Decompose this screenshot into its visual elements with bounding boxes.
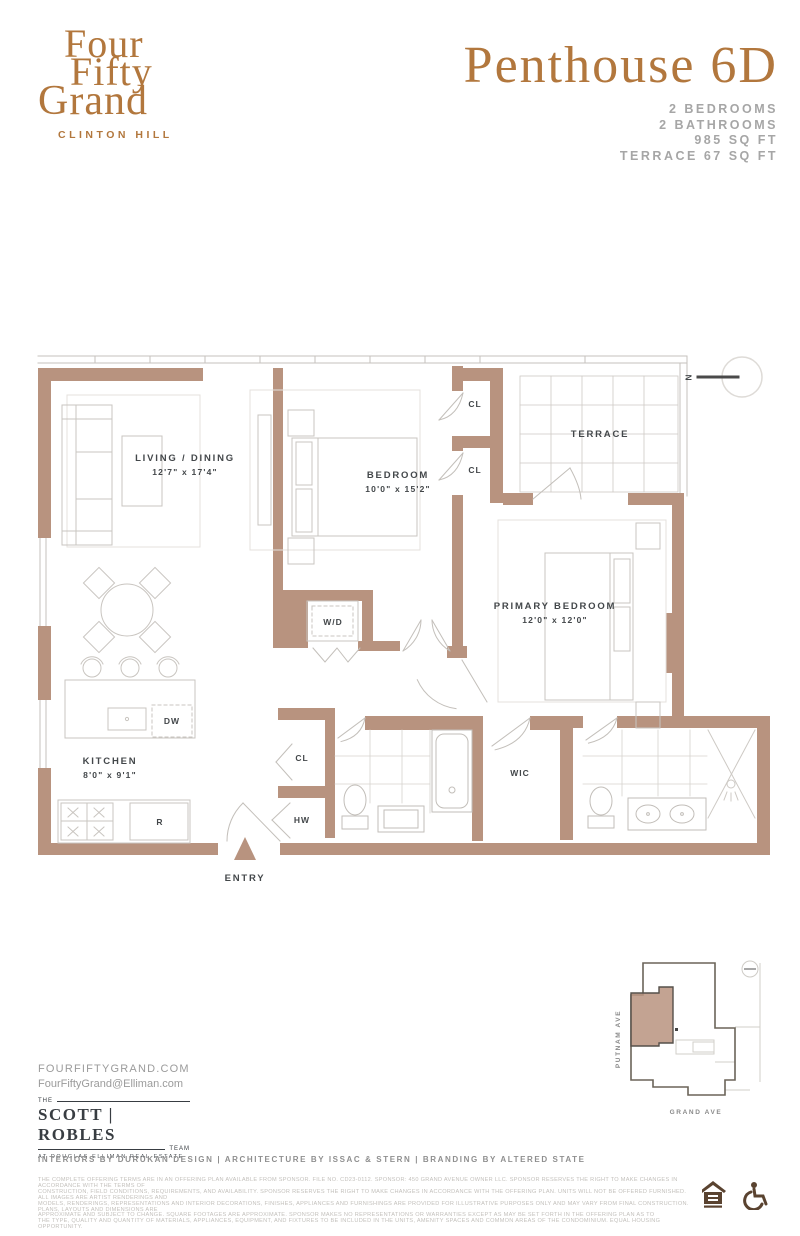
shower bbox=[708, 730, 755, 818]
window-lines bbox=[38, 356, 687, 768]
team-the: THE bbox=[38, 1098, 53, 1104]
wheelchair-accessible-icon bbox=[745, 1182, 766, 1210]
street-grand-label: GRAND AVE bbox=[670, 1109, 723, 1116]
website-link[interactable]: FOURFIFTYGRAND.COM bbox=[38, 1062, 190, 1077]
rule-top bbox=[57, 1101, 190, 1102]
primary-dims: 12'0" x 12'0" bbox=[522, 615, 588, 625]
primary-label: PRIMARY BEDROOM bbox=[494, 601, 617, 612]
keyplan-compass-icon bbox=[742, 961, 758, 977]
kitchen-dims: 8'0" x 9'1" bbox=[83, 770, 137, 780]
floor-plan: N LIVING / DINING 12'7" x 17'4" BEDROOM … bbox=[30, 348, 775, 893]
bedroom-label: BEDROOM bbox=[367, 470, 429, 481]
dw-label: DW bbox=[164, 716, 180, 726]
fair-housing-icons bbox=[702, 1180, 774, 1210]
pillow bbox=[296, 442, 312, 485]
living-room-label: LIVING / DINING bbox=[135, 453, 235, 464]
team-name: SCOTT | ROBLES bbox=[38, 1105, 190, 1145]
stove-icon bbox=[61, 803, 113, 840]
north-arrow: N bbox=[683, 357, 762, 397]
living-room-dims: 12'7" x 17'4" bbox=[152, 467, 218, 477]
disclaimer-line: CONSTRUCTION, FIELD CONDITIONS, REQUIREM… bbox=[38, 1190, 693, 1202]
unit-title: Penthouse 6D bbox=[464, 36, 778, 95]
spec-bathrooms: 2 BATHROOMS bbox=[620, 118, 778, 134]
nightstand bbox=[636, 523, 660, 549]
north-label: N bbox=[683, 373, 693, 380]
walls bbox=[38, 366, 770, 860]
email-link[interactable]: FourFiftyGrand@Elliman.com bbox=[38, 1077, 190, 1092]
kitchen-fixtures bbox=[58, 657, 195, 843]
toilet-tank bbox=[342, 816, 368, 829]
nightstand bbox=[288, 538, 314, 564]
spec-bedrooms: 2 BEDROOMS bbox=[620, 102, 778, 118]
unit-specs: 2 BEDROOMS 2 BATHROOMS 985 SQ FT TERRACE… bbox=[620, 102, 778, 164]
building-logo: Four Fifty Grand CLINTON HILL bbox=[38, 24, 173, 141]
toilet bbox=[590, 787, 612, 815]
design-credits: INTERIORS BY DURUKAN DESIGN | ARCHITECTU… bbox=[38, 1155, 586, 1164]
pillow bbox=[614, 607, 630, 651]
pillow bbox=[614, 559, 630, 603]
sofa bbox=[62, 405, 112, 545]
bath2-fixtures bbox=[588, 730, 755, 830]
closet-label: CL bbox=[295, 753, 308, 763]
closet-label: CL bbox=[468, 465, 481, 475]
media-console bbox=[258, 415, 271, 525]
entry-label: ENTRY bbox=[225, 873, 266, 884]
contact-block: FOURFIFTYGRAND.COM FourFiftyGrand@Ellima… bbox=[38, 1062, 190, 1092]
nightstand bbox=[288, 410, 314, 436]
equal-housing-icon bbox=[702, 1181, 726, 1208]
closet-label: CL bbox=[468, 399, 481, 409]
kitchen-label: KITCHEN bbox=[83, 756, 138, 767]
toilet-tank bbox=[588, 816, 614, 828]
wic-label: WIC bbox=[510, 768, 530, 778]
bath2-tile bbox=[583, 730, 707, 796]
unit-dot bbox=[675, 1028, 678, 1031]
disclaimer-line: THE TYPE, QUALITY AND QUANTITY OF MATERI… bbox=[38, 1219, 693, 1231]
key-plan: PUTNAM AVE GRAND AVE bbox=[608, 942, 793, 1132]
plan-graphics: N LIVING / DINING 12'7" x 17'4" BEDROOM … bbox=[38, 356, 770, 884]
legal-disclaimer: THE COMPLETE OFFERING TERMS ARE IN AN OF… bbox=[38, 1178, 693, 1231]
terrace-label: TERRACE bbox=[571, 429, 630, 440]
hw-label: HW bbox=[294, 815, 310, 825]
kitchen-island bbox=[65, 680, 195, 738]
pillow bbox=[296, 489, 312, 532]
rule-bottom bbox=[38, 1149, 165, 1150]
toilet bbox=[344, 785, 366, 815]
street-putnam-label: PUTNAM AVE bbox=[615, 1010, 622, 1068]
team-team: TEAM bbox=[169, 1146, 190, 1152]
primary-bed bbox=[545, 553, 633, 700]
entry-arrow-icon bbox=[234, 837, 256, 860]
keyplan-context-lines bbox=[676, 963, 760, 1090]
brokerage-logo: THE SCOTT | ROBLES TEAM AT DOUGLAS ELLIM… bbox=[38, 1098, 190, 1160]
keyplan-graphics: PUTNAM AVE GRAND AVE bbox=[615, 961, 760, 1116]
spec-sqft: 985 SQ FT bbox=[620, 133, 778, 149]
living-furniture bbox=[62, 395, 271, 653]
island-sink bbox=[108, 708, 146, 730]
refrigerator-label: R bbox=[156, 817, 163, 827]
floorplan-sheet: Four Fifty Grand CLINTON HILL Penthouse … bbox=[0, 0, 800, 1236]
logo-neighborhood: CLINTON HILL bbox=[58, 130, 173, 141]
dining-chairs bbox=[83, 567, 170, 652]
bedroom-dims: 10'0" x 15'2" bbox=[365, 484, 431, 494]
dining-table bbox=[101, 584, 153, 636]
spec-terrace: TERRACE 67 SQ FT bbox=[620, 149, 778, 165]
unit-location-highlight bbox=[631, 987, 673, 1046]
wd-label: W/D bbox=[323, 617, 343, 627]
bath1-fixtures bbox=[342, 730, 472, 832]
bar-stools bbox=[81, 657, 179, 677]
